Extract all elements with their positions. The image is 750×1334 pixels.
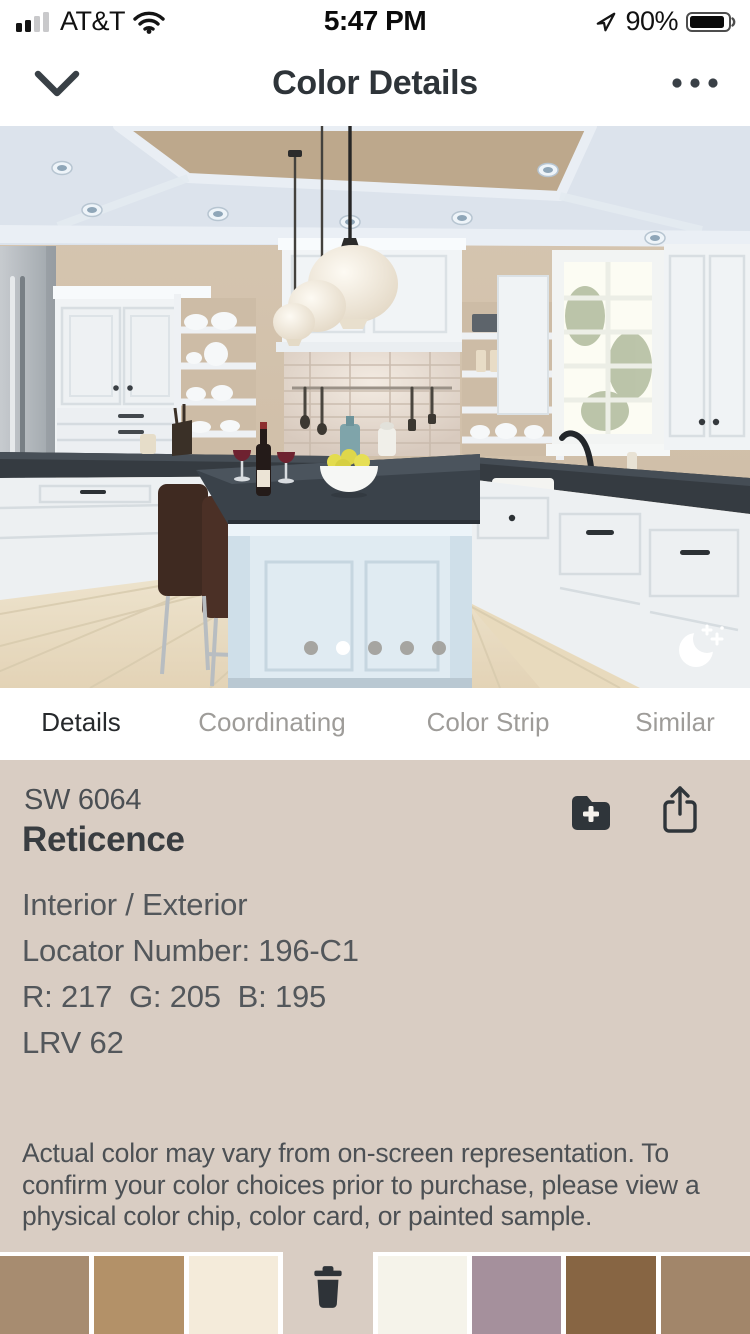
color-code: SW 6064 — [24, 784, 141, 817]
palette-swatch-6[interactable] — [561, 1252, 655, 1334]
tab-similar[interactable]: Similar — [635, 707, 714, 738]
left-cabinets — [53, 286, 256, 459]
palette-swatch-3[interactable] — [184, 1252, 278, 1334]
color-name: Reticence — [22, 820, 185, 860]
locator-line: Locator Number: 196-C1 — [22, 928, 359, 974]
add-to-folder-icon[interactable] — [568, 792, 614, 834]
palette-trash-button[interactable] — [278, 1252, 372, 1334]
color-specs: Interior / Exterior Locator Number: 196-… — [22, 882, 359, 1066]
rgb-line: R: 217 G: 205 B: 195 — [22, 974, 359, 1020]
carousel-dot-2[interactable] — [336, 641, 350, 655]
palette-swatch-1[interactable] — [0, 1252, 89, 1334]
tab-color-strip[interactable]: Color Strip — [427, 707, 550, 738]
lrv-line: LRV 62 — [22, 1020, 359, 1066]
nav-bar: Color Details — [0, 40, 750, 126]
color-disclaimer: Actual color may vary from on-screen rep… — [22, 1138, 730, 1233]
palette-swatch-5[interactable] — [467, 1252, 561, 1334]
trash-icon — [308, 1264, 348, 1310]
kitchen-scene — [0, 126, 750, 688]
page-title: Color Details — [0, 64, 750, 103]
carousel-dots[interactable] — [0, 641, 750, 655]
color-details-panel: SW 6064 Reticence Interior / Exterior Lo… — [0, 760, 750, 1334]
battery-icon — [686, 10, 738, 34]
color-details-screen: AT&T 5:47 PM 90% Color Details — [0, 0, 750, 1334]
carousel-dot-5[interactable] — [432, 641, 446, 655]
ceiling — [0, 126, 750, 247]
night-mode-moon-icon[interactable] — [674, 622, 726, 674]
kitchen-photo[interactable] — [0, 126, 750, 688]
battery-percent: 90% — [625, 6, 678, 37]
saved-palette-bar — [0, 1252, 750, 1334]
carousel-dot-1[interactable] — [304, 641, 318, 655]
window — [546, 250, 670, 456]
palette-swatch-2[interactable] — [89, 1252, 183, 1334]
tab-bar: Details Coordinating Color Strip Similar — [0, 688, 750, 760]
usage-line: Interior / Exterior — [22, 882, 359, 928]
tab-details[interactable]: Details — [41, 707, 120, 738]
share-icon[interactable] — [658, 784, 702, 838]
status-bar: AT&T 5:47 PM 90% — [0, 0, 750, 40]
palette-swatch-4[interactable] — [373, 1252, 467, 1334]
carousel-dot-3[interactable] — [368, 641, 382, 655]
carousel-dot-4[interactable] — [400, 641, 414, 655]
palette-swatch-7[interactable] — [656, 1252, 750, 1334]
more-options-icon[interactable] — [670, 76, 720, 90]
location-arrow-icon — [595, 11, 617, 33]
tab-coordinating[interactable]: Coordinating — [198, 707, 345, 738]
